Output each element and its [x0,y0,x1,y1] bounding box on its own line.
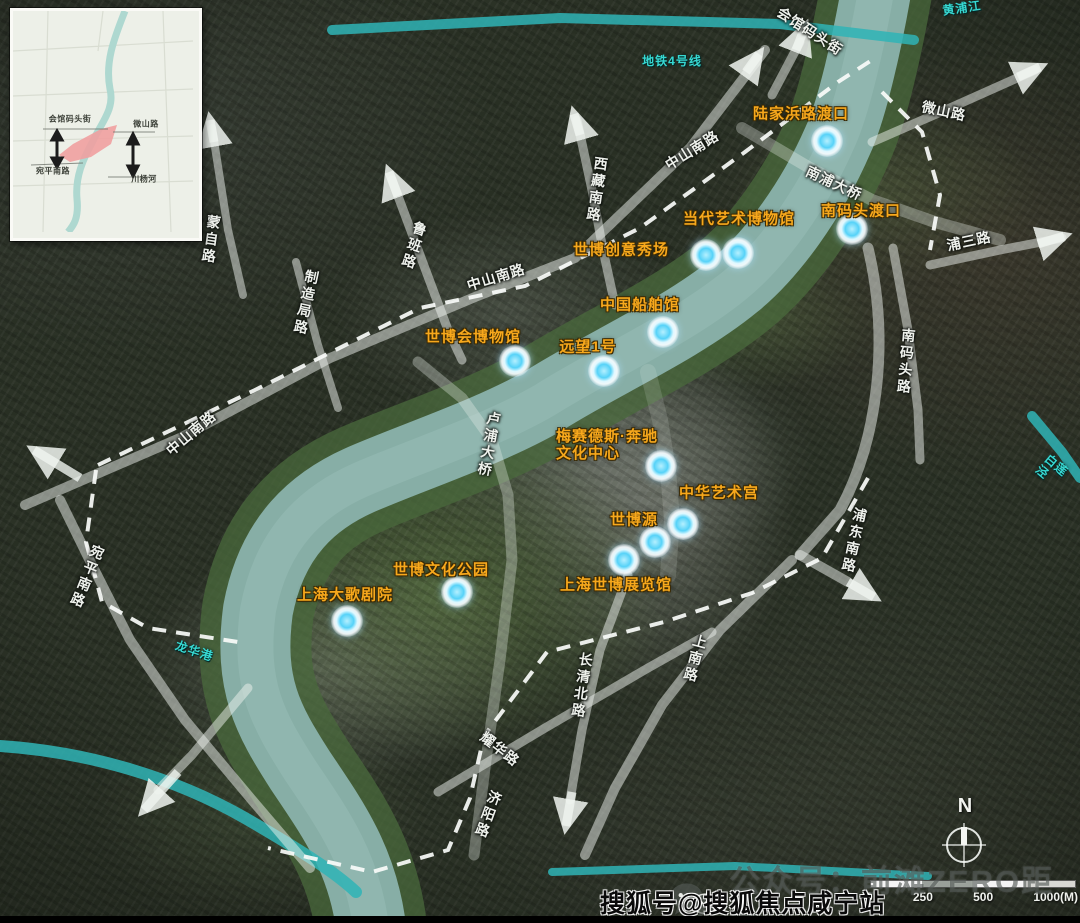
road-label: 中山南路 [465,261,527,294]
road-label: 南浦大桥 [803,163,864,203]
landmark-label: 世博会博物馆 [425,328,521,345]
road-label: 中山南路 [662,127,721,172]
road-label: 长清北路 [569,651,594,721]
inset-label: 会馆码头街 [49,114,92,125]
landmark-marker [667,508,699,540]
landmark-marker [690,239,722,271]
road-label: 浦三路 [945,228,992,253]
landmark-label: 梅赛德斯·奔驰 文化中心 [556,428,658,463]
road-label: 微山路 [920,98,967,123]
waterway-label: 龙华港 [173,639,214,664]
landmark-label: 中华艺术宫 [679,484,759,501]
road-label: 卢浦大桥 [475,410,503,480]
bottom-black-bar [0,916,1080,923]
inset-graphics [13,11,193,232]
sohu-watermark: 搜狐号@搜狐焦点咸宁站 [600,884,885,920]
road-label: 宛平南路 [67,542,107,611]
landmark-marker [722,237,754,269]
landmark-label: 南码头渡口 [821,202,901,219]
inset-label: 宛平南路 [36,166,70,177]
road-label: 上南路 [681,632,710,685]
map-stage: 会馆码头街微山路中山南路西藏南路鲁班路中山南路制造局路蒙自路南浦大桥卢浦大桥中山… [0,0,1080,923]
compass-north-label: N [958,795,972,818]
road-label: 会馆码头街 [774,4,846,58]
landmark-marker [441,576,473,608]
road-label: 西藏南路 [584,155,609,225]
landmark-label: 上海世博展览馆 [560,576,672,593]
landmark-label: 当代艺术博物馆 [683,210,795,227]
waterway-label: 地铁4号线 [642,55,702,69]
inset-label: 微山路 [133,119,159,130]
landmark-marker [499,345,531,377]
road-label: 济阳路 [472,788,505,841]
landmark-marker [639,526,671,558]
landmark-label: 世博源 [610,511,658,528]
road-label: 鲁班路 [398,219,429,272]
waterway-label: 白莲泾 [1032,452,1071,491]
road-label: 南码头路 [895,327,917,396]
landmark-marker [811,125,843,157]
inset-highlight-region [59,125,117,162]
landmark-marker [588,355,620,387]
landmark-label: 中国船舶馆 [600,296,680,313]
inset-map: 会馆码头街微山路宛平南路川杨河 [10,8,202,241]
landmark-marker [608,544,640,576]
landmark-label: 陆家浜路渡口 [753,105,849,122]
road-label: 耀华路 [477,729,522,769]
waterway-label: 黄浦江 [942,0,983,19]
road-label: 中山南路 [163,408,219,459]
road-label: 浦东南路 [839,506,869,576]
landmark-label: 世博创意秀场 [573,241,669,258]
landmark-marker [331,605,363,637]
landmark-label: 上海大歌剧院 [297,586,393,603]
road-label: 蒙自路 [199,214,222,267]
road-label: 制造局路 [291,268,321,338]
landmark-label: 世博文化公园 [393,561,489,578]
landmark-label: 远望1号 [559,338,616,355]
landmark-marker [647,316,679,348]
inset-label: 川杨河 [131,174,157,185]
